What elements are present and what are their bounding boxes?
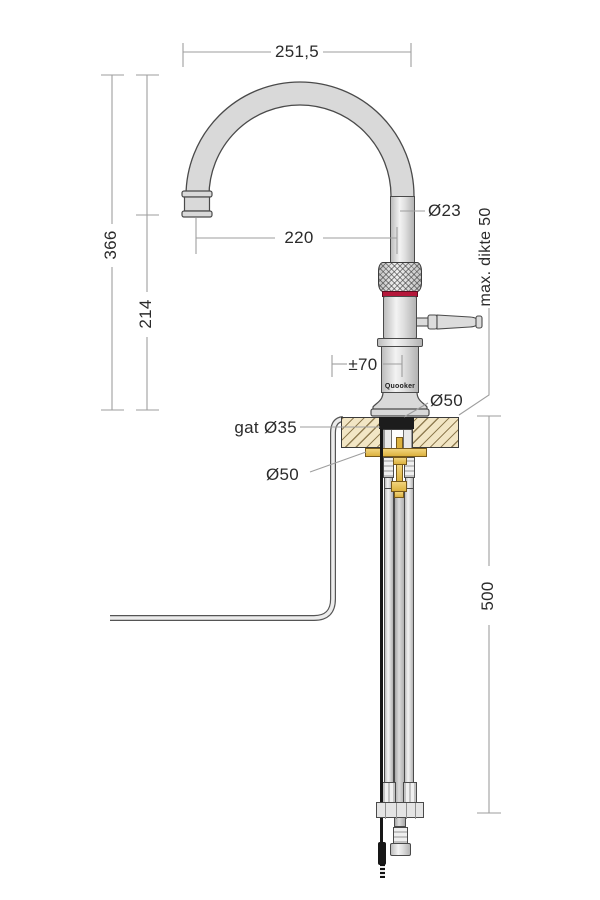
dim-top-width-label: 251,5 — [264, 42, 330, 62]
dim-height-total-label: 366 — [101, 230, 121, 259]
dim-under-depth-label: 500 — [478, 581, 498, 610]
technical-drawing-canvas: Quooker — [0, 0, 600, 900]
dim-height-outlet-label: 214 — [136, 299, 156, 328]
dimension-layer — [0, 0, 600, 900]
dim-swivel-label: ±70 — [344, 355, 382, 375]
dim-max-thickness-label: max. dikte 50 — [477, 207, 495, 306]
dim-base-diameter-label: Ø50 — [430, 391, 463, 411]
dim-reach-label: 220 — [277, 228, 321, 248]
dim-flange-diameter-label: Ø50 — [266, 465, 299, 485]
dim-spout-diameter-label: Ø23 — [428, 201, 461, 221]
dim-hole-diameter-label: gat Ø35 — [227, 418, 297, 438]
